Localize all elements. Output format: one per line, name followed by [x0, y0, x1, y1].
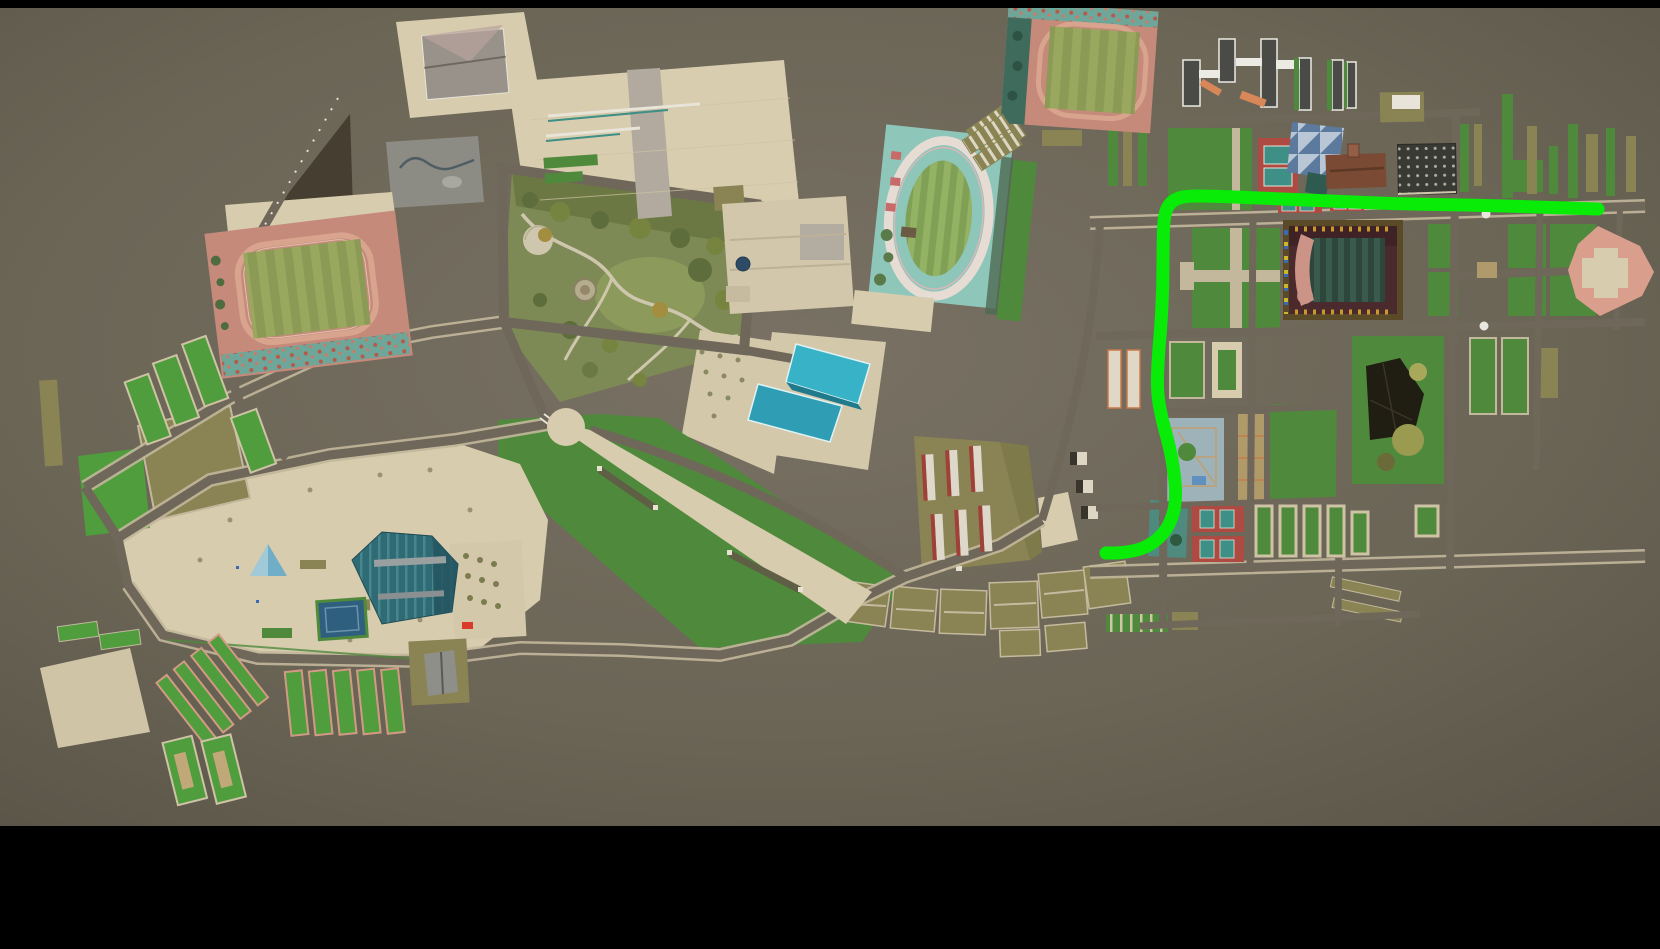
letterbox-top	[0, 0, 1660, 8]
blue-sports-court	[317, 598, 368, 639]
stadium-west-lawns	[1180, 228, 1280, 328]
app-window	[0, 0, 1660, 949]
white-car-dot-2	[1480, 322, 1489, 331]
gabled-roof-building	[421, 25, 509, 100]
north-east-track	[1000, 1, 1158, 133]
red-marker	[462, 622, 473, 629]
khaki-white-building	[1380, 92, 1425, 123]
straight-courts-b	[285, 660, 405, 743]
campus-gate-detail	[1477, 262, 1497, 278]
main-tower-building	[722, 196, 854, 314]
west-athletics-track	[204, 210, 412, 378]
skate-park	[386, 136, 484, 208]
auditorium-lawn	[1352, 336, 1444, 484]
dotted-roof-building	[1398, 143, 1457, 194]
blue-dome	[736, 257, 750, 271]
map-viewport[interactable]	[0, 0, 1660, 949]
letterbox-bottom	[0, 826, 1660, 949]
main-stadium	[1283, 220, 1403, 320]
